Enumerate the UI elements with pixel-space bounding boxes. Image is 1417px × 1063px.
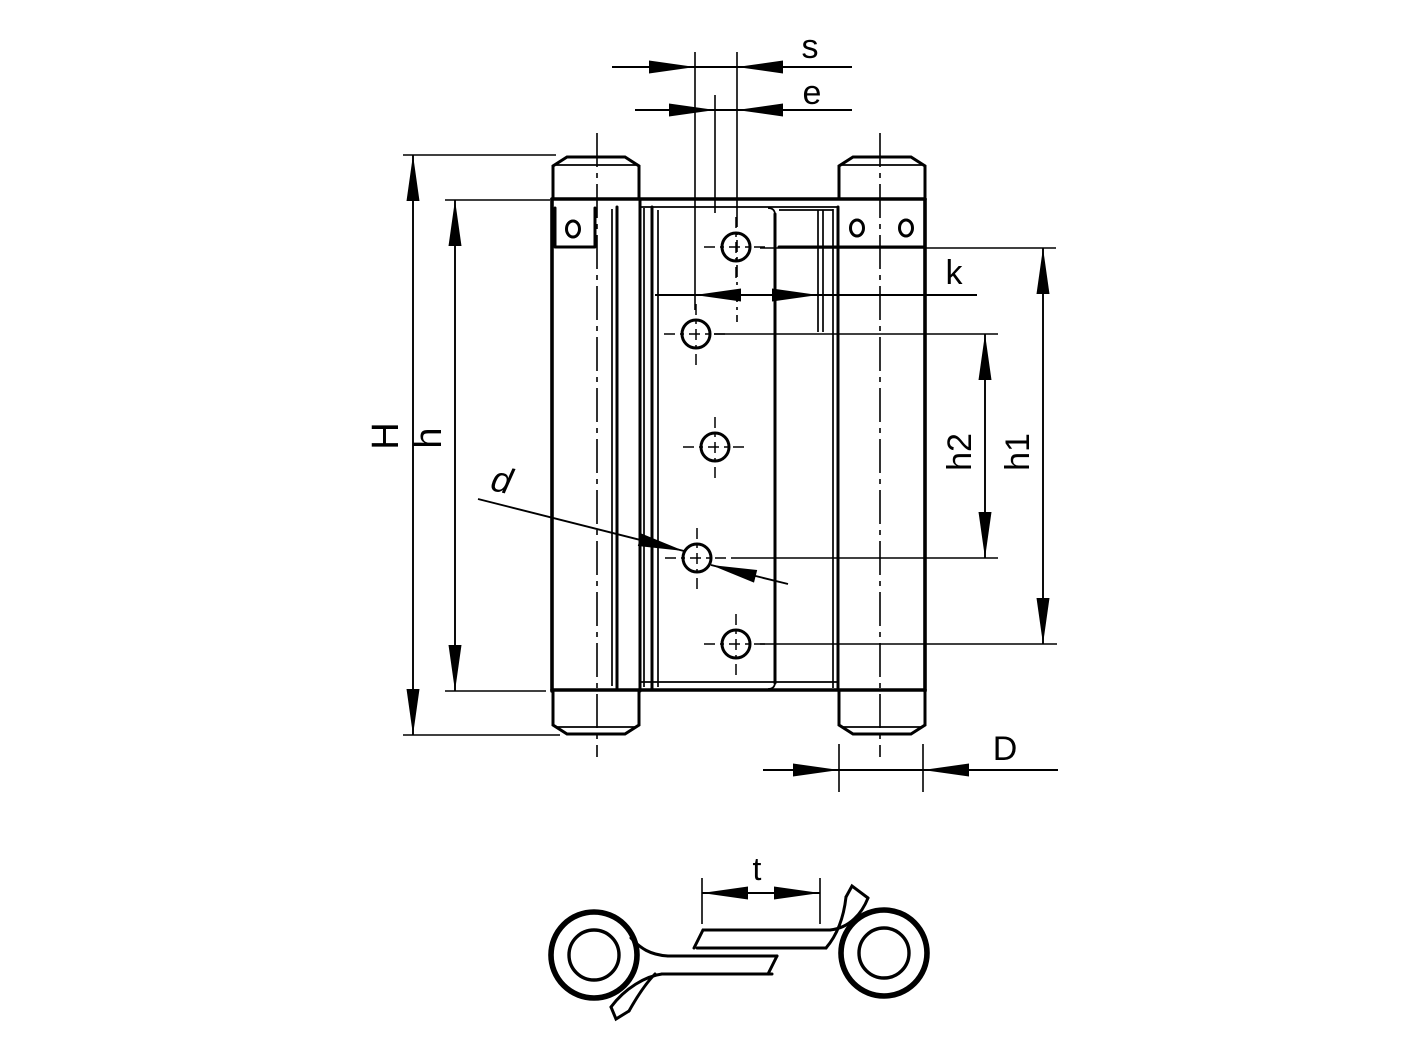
mounting-holes [664,217,768,676]
dimension-h2: h2 [714,334,998,558]
left-barrel-bottom-cap [553,691,639,734]
mounting-hole-1 [704,217,768,279]
dim-label-k: k [946,254,964,292]
mounting-hole-5 [704,614,768,676]
drawing-canvas: s e H h [0,0,1417,1063]
dimension-e: e [635,74,852,117]
mounting-hole-2 [664,304,728,366]
front-view [552,133,925,757]
dim-label-H: H [365,422,407,449]
screw-hole [851,220,864,236]
right-barrel-section [841,910,927,996]
dim-label-d: d [487,458,517,503]
dimension-d: d [478,458,788,584]
mounting-hole-3 [683,417,747,479]
section-view [551,886,927,1019]
left-barrel [552,199,644,691]
dim-label-h: h [408,427,450,448]
left-barrel-section [551,912,637,998]
left-barrel-top-cap [553,157,639,199]
left-ring-outer [551,912,637,998]
right-ring-inner [859,928,909,978]
screw-hole [567,221,580,237]
left-ring-inner [569,930,619,980]
screw-hole [900,220,913,236]
right-barrel-top-cap [839,157,925,199]
dimension-k: k [655,254,977,302]
dimension-annotations: s e H h [365,28,1058,924]
dimension-h1: h1 [760,248,1057,644]
center-plate [652,207,775,690]
dimension-D: D [763,730,1058,792]
right-barrel-bottom-cap [839,691,925,734]
top-left-screw-plate [555,208,595,247]
dimension-H: H [365,155,560,735]
dimension-t: t [702,851,820,924]
right-ring-outer [841,910,927,996]
dim-label-D: D [993,730,1018,768]
dim-label-t: t [753,851,762,887]
mounting-hole-4 [665,528,729,590]
dim-label-s: s [802,28,819,66]
top-right-screw-plate [779,220,924,247]
dimension-h: h [408,200,550,691]
dim-label-h2: h2 [941,433,979,471]
dim-label-e: e [803,74,822,112]
dim-label-h1: h1 [999,433,1037,471]
right-leaf-fold [779,207,838,690]
dimension-s: s [612,28,852,74]
